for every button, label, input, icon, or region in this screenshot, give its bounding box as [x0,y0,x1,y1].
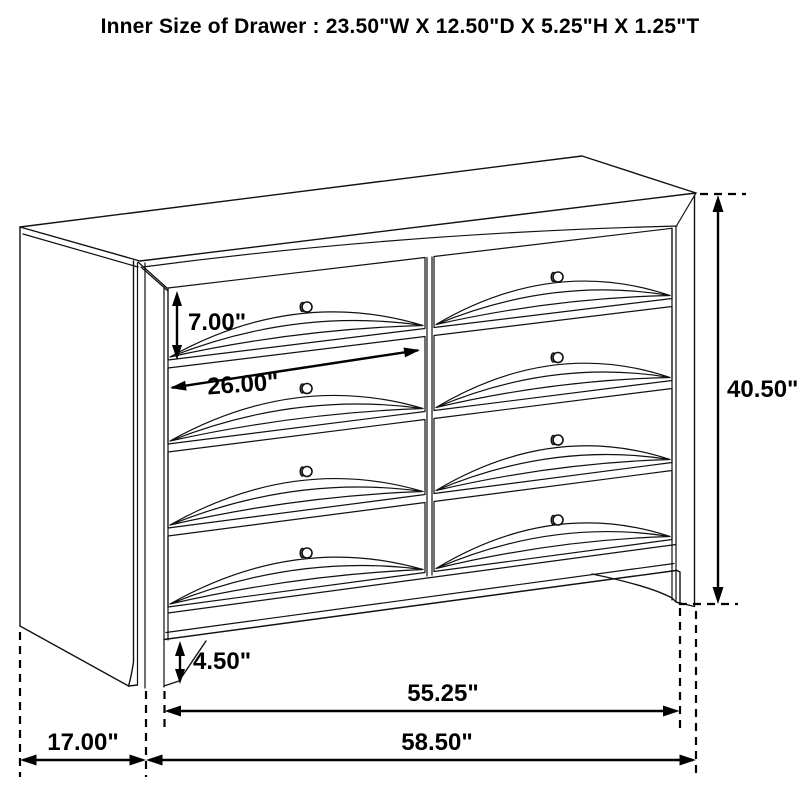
drawer-knob-icon [553,515,563,525]
arrow-right-icon [663,706,680,717]
drawer-handle [170,479,423,525]
arrow-left-icon [170,381,187,391]
drawer-knob-icon [553,435,563,445]
drawer-handle [170,557,423,604]
drawer-right-3 [434,389,672,494]
dim-overall-width: 58.50" [146,729,696,766]
dim-label-overall-height: 40.50" [727,376,798,403]
top-front-edge [140,193,696,261]
arrow-up-icon [175,641,185,656]
drawer-right-1 [434,228,672,327]
drawer-knob-icon [302,384,312,394]
arrow-left-icon [165,706,182,717]
drawer-knob-icon [302,302,312,312]
side-bottom-edge [20,626,138,686]
dim-label-case-width: 55.25" [407,680,478,707]
drawer-handle [170,395,423,441]
extension-lines [20,194,746,777]
arrow-right-icon [404,348,421,358]
dim-side-depth: 17.00" [20,729,146,766]
dim-case-width: 55.25" [165,680,680,717]
front-right-bracket-foot [592,574,676,602]
drawer-left-3 [168,420,425,529]
drawer-grid [168,228,672,607]
side-front-corner-outer [129,261,134,686]
dim-foot-height: 4.50" [175,641,251,684]
drawer-front-outline [168,503,425,608]
top-left-thickness-line [23,234,138,267]
drawer-handle [436,446,670,491]
dim-label-foot-height: 4.50" [193,648,251,675]
dim-label-drawer-width: 26.00" [206,369,279,401]
arrow-down-icon [713,587,724,604]
arrow-up-icon [713,195,724,212]
drawer-left-4 [168,503,425,608]
arrow-left-icon [20,755,37,766]
diagram-page: Inner Size of Drawer : 23.50"W X 12.50"D… [0,0,800,800]
drawer-knob-icon [302,548,312,558]
bottom-rail-lower-line [166,564,674,633]
diagram-title: Inner Size of Drawer : 23.50"W X 12.50"D… [101,15,700,38]
dresser-side-panel [20,227,138,686]
dim-label-side-depth: 17.00" [47,729,118,756]
drawer-knob-icon [302,467,312,477]
right-foot-outer-edge [676,570,695,607]
top-left-edge [20,227,140,261]
drawer-knob-icon [553,272,563,282]
dresser-technical-drawing: Inner Size of Drawer : 23.50"W X 12.50"D… [0,0,800,800]
arrow-left-icon [146,755,163,766]
drawer-knob-icon [553,353,563,363]
top-left-bevel [138,262,168,291]
arrow-right-icon [680,755,697,766]
dim-label-overall-width: 58.50" [401,729,472,756]
dim-overall-height: 40.50" [713,195,799,604]
top-right-bevel [677,193,696,225]
drawer-right-4 [434,471,672,572]
dim-label-drawer-height: 7.00" [188,309,246,336]
dresser-top-surface [20,156,696,291]
dresser-front-frame [145,195,695,688]
arrow-up-icon [172,291,182,306]
top-back-right-edges [20,156,696,227]
bottom-rail-top-edge [168,545,676,614]
top-front-underside-curve [143,226,677,267]
center-stile [427,257,432,576]
drawer-right-2 [434,307,672,411]
arrow-right-icon [130,755,147,766]
